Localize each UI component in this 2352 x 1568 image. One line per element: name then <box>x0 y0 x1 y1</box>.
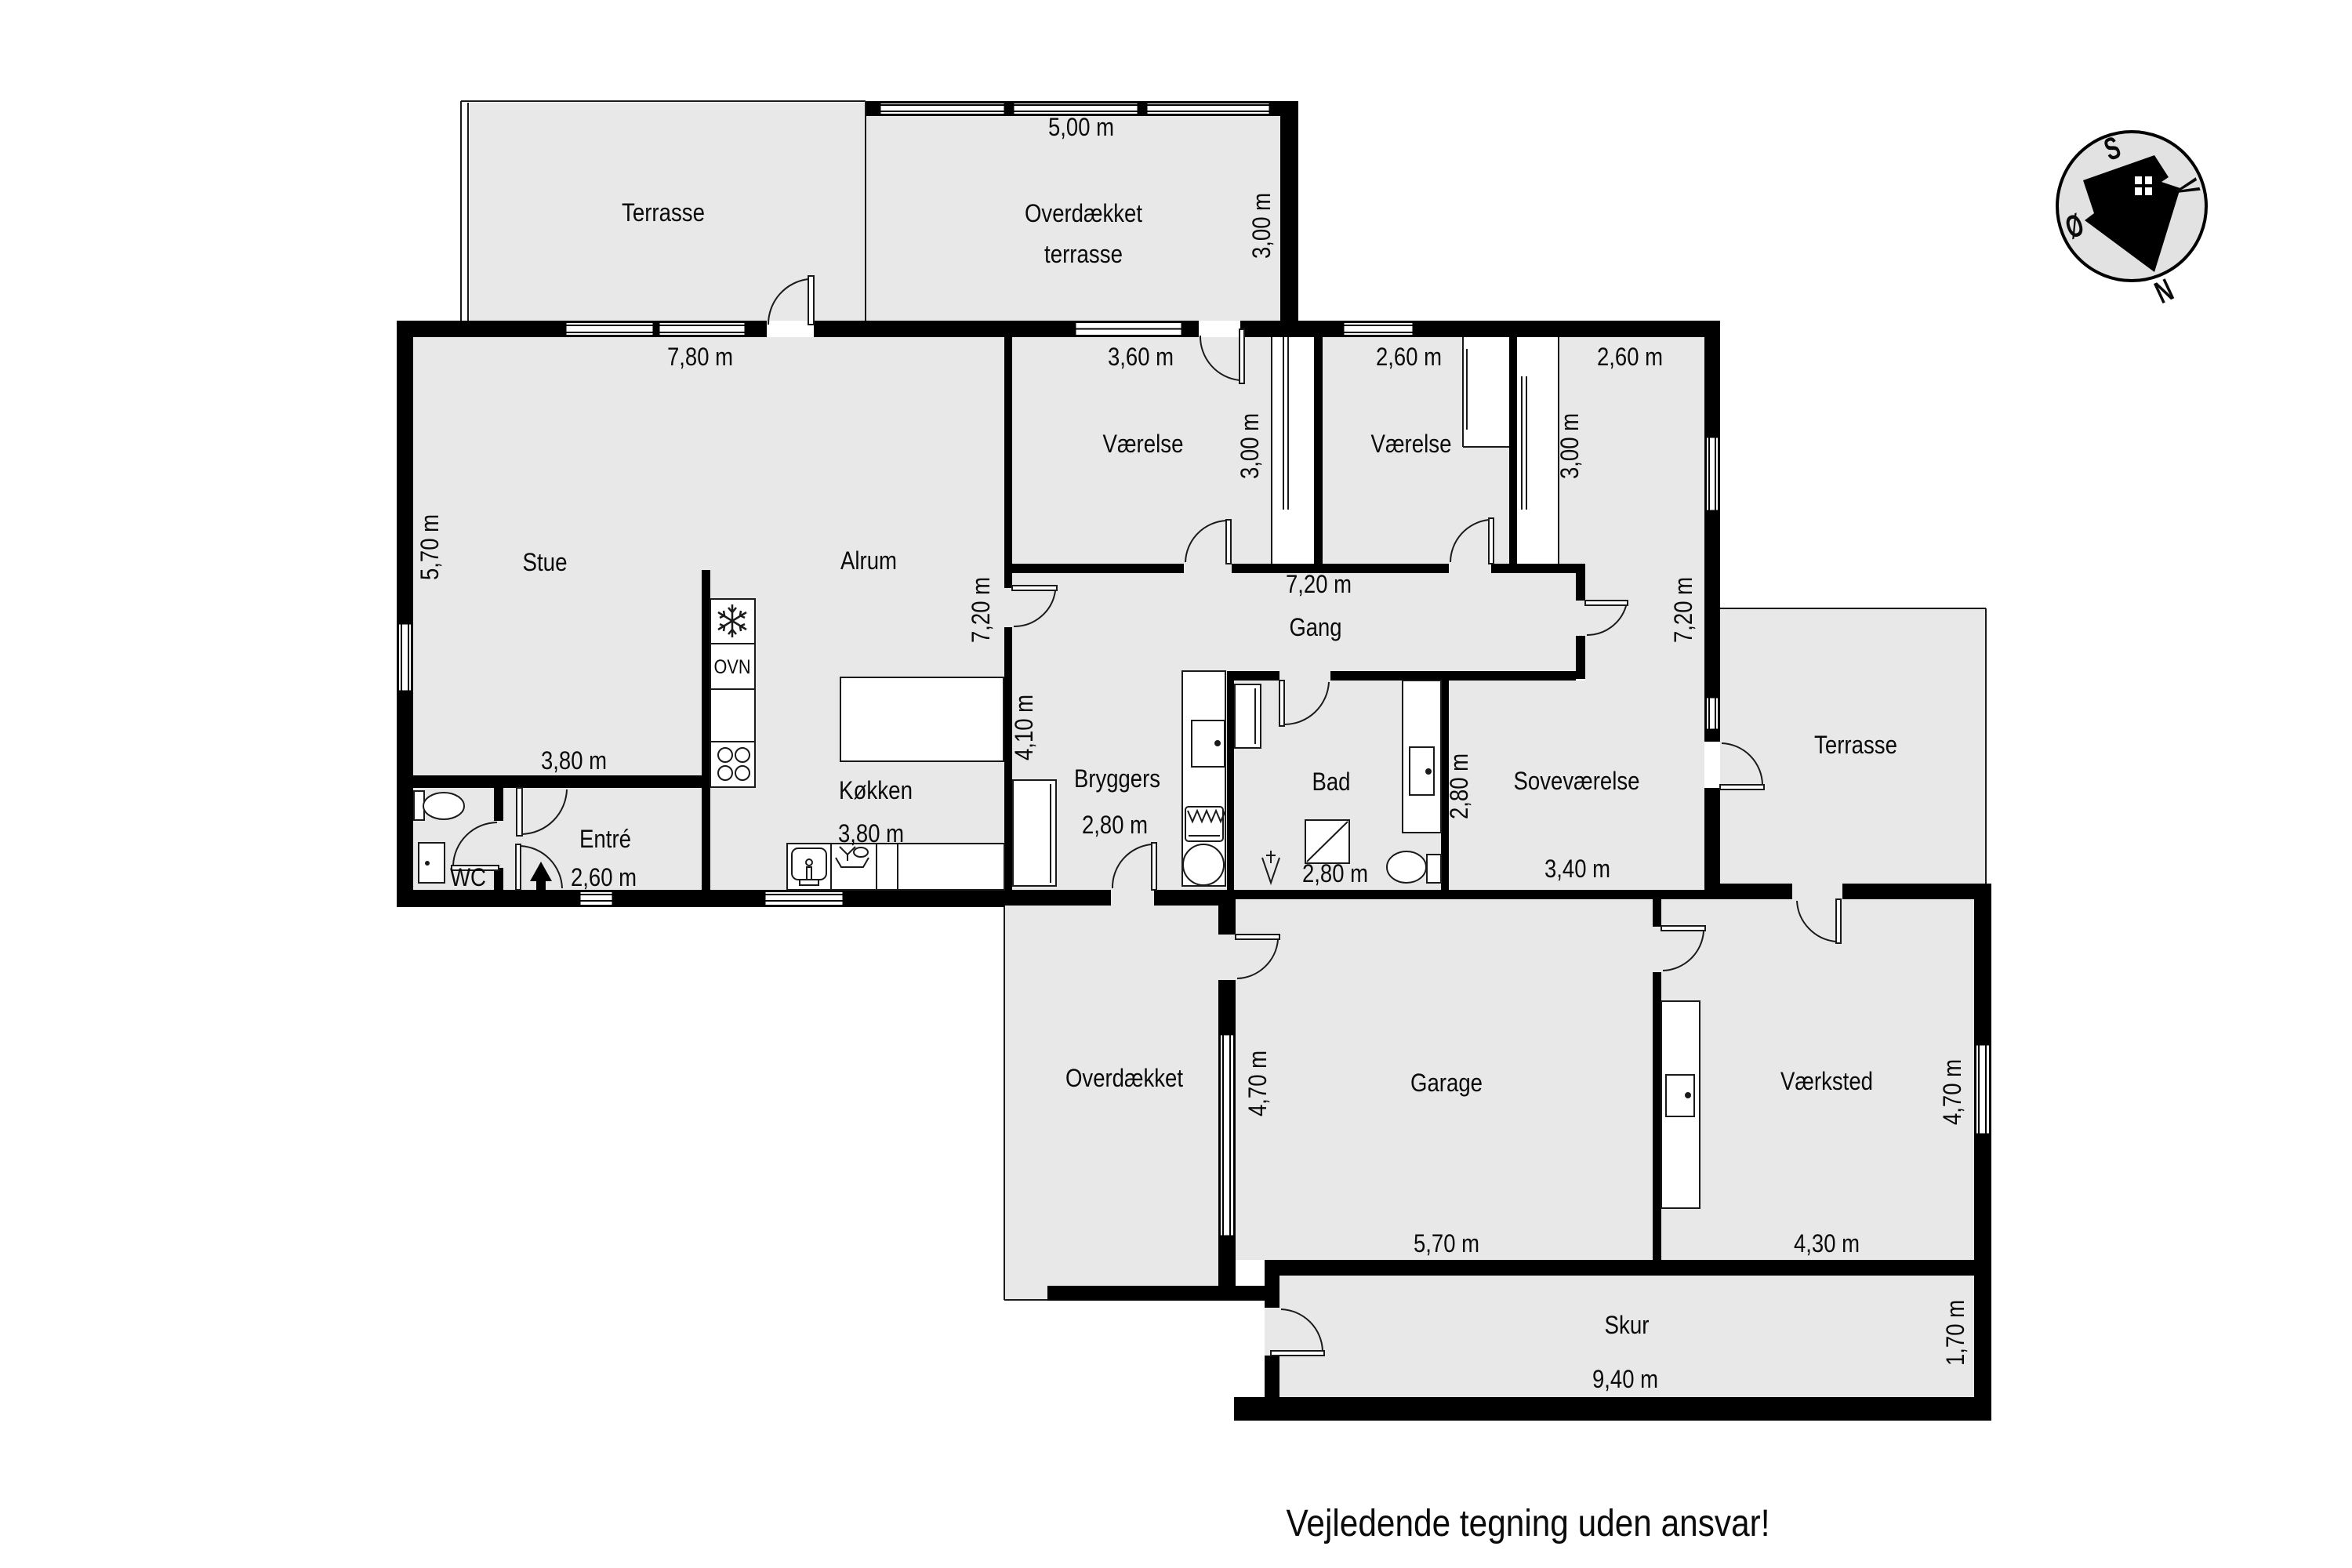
svg-text:Terrasse: Terrasse <box>622 198 705 227</box>
svg-text:2,60 m: 2,60 m <box>1597 343 1663 371</box>
svg-text:4,70 m: 4,70 m <box>1938 1059 1966 1125</box>
svg-text:3,60 m: 3,60 m <box>1108 343 1174 371</box>
svg-text:terrasse: terrasse <box>1044 240 1123 268</box>
svg-text:7,80 m: 7,80 m <box>667 343 733 371</box>
svg-text:2,80 m: 2,80 m <box>1302 859 1368 887</box>
svg-text:1,70 m: 1,70 m <box>1941 1300 1969 1366</box>
svg-text:Alrum: Alrum <box>840 546 897 575</box>
svg-text:Garage: Garage <box>1410 1069 1483 1097</box>
svg-text:Skur: Skur <box>1605 1311 1650 1339</box>
svg-text:3,80 m: 3,80 m <box>838 819 904 848</box>
svg-text:Terrasse: Terrasse <box>1814 731 1897 759</box>
svg-text:OVN: OVN <box>714 656 751 678</box>
svg-text:3,00 m: 3,00 m <box>1247 193 1276 259</box>
svg-text:7,20 m: 7,20 m <box>967 577 995 643</box>
svg-text:Bad: Bad <box>1312 768 1351 796</box>
svg-text:7,20 m: 7,20 m <box>1669 577 1697 643</box>
svg-text:5,70 m: 5,70 m <box>416 514 444 580</box>
svg-text:Vejledende tegning uden ansvar: Vejledende tegning uden ansvar! <box>1287 1503 1770 1544</box>
svg-text:Køkken: Køkken <box>839 776 913 804</box>
svg-text:3,80 m: 3,80 m <box>541 746 607 775</box>
svg-text:5,70 m: 5,70 m <box>1414 1229 1479 1258</box>
svg-text:2,80 m: 2,80 m <box>1082 811 1148 839</box>
svg-text:Værelse: Værelse <box>1371 430 1452 458</box>
svg-text:2,60 m: 2,60 m <box>1376 343 1442 371</box>
svg-text:3,00 m: 3,00 m <box>1236 413 1264 479</box>
svg-text:Overdækket: Overdækket <box>1065 1064 1183 1092</box>
svg-text:3,00 m: 3,00 m <box>1555 413 1584 479</box>
svg-text:Soveværelse: Soveværelse <box>1514 767 1640 795</box>
svg-text:9,40 m: 9,40 m <box>1592 1365 1658 1393</box>
svg-text:Gang: Gang <box>1290 613 1342 641</box>
svg-text:3,40 m: 3,40 m <box>1544 855 1610 883</box>
svg-text:Overdækket: Overdækket <box>1025 199 1142 227</box>
svg-text:2,80 m: 2,80 m <box>1445 753 1473 819</box>
svg-text:Bryggers: Bryggers <box>1074 764 1160 793</box>
svg-text:Værksted: Værksted <box>1780 1067 1873 1095</box>
svg-text:4,10 m: 4,10 m <box>1010 695 1038 760</box>
svg-text:7,20 m: 7,20 m <box>1286 570 1352 598</box>
svg-text:2,60 m: 2,60 m <box>571 863 637 891</box>
svg-text:Værelse: Værelse <box>1103 430 1184 458</box>
svg-text:WC: WC <box>450 863 486 891</box>
svg-text:Entré: Entré <box>579 825 631 853</box>
svg-text:5,00 m: 5,00 m <box>1048 113 1114 141</box>
svg-text:4,30 m: 4,30 m <box>1794 1229 1860 1258</box>
svg-text:4,70 m: 4,70 m <box>1243 1051 1272 1116</box>
svg-text:Stue: Stue <box>523 548 568 576</box>
